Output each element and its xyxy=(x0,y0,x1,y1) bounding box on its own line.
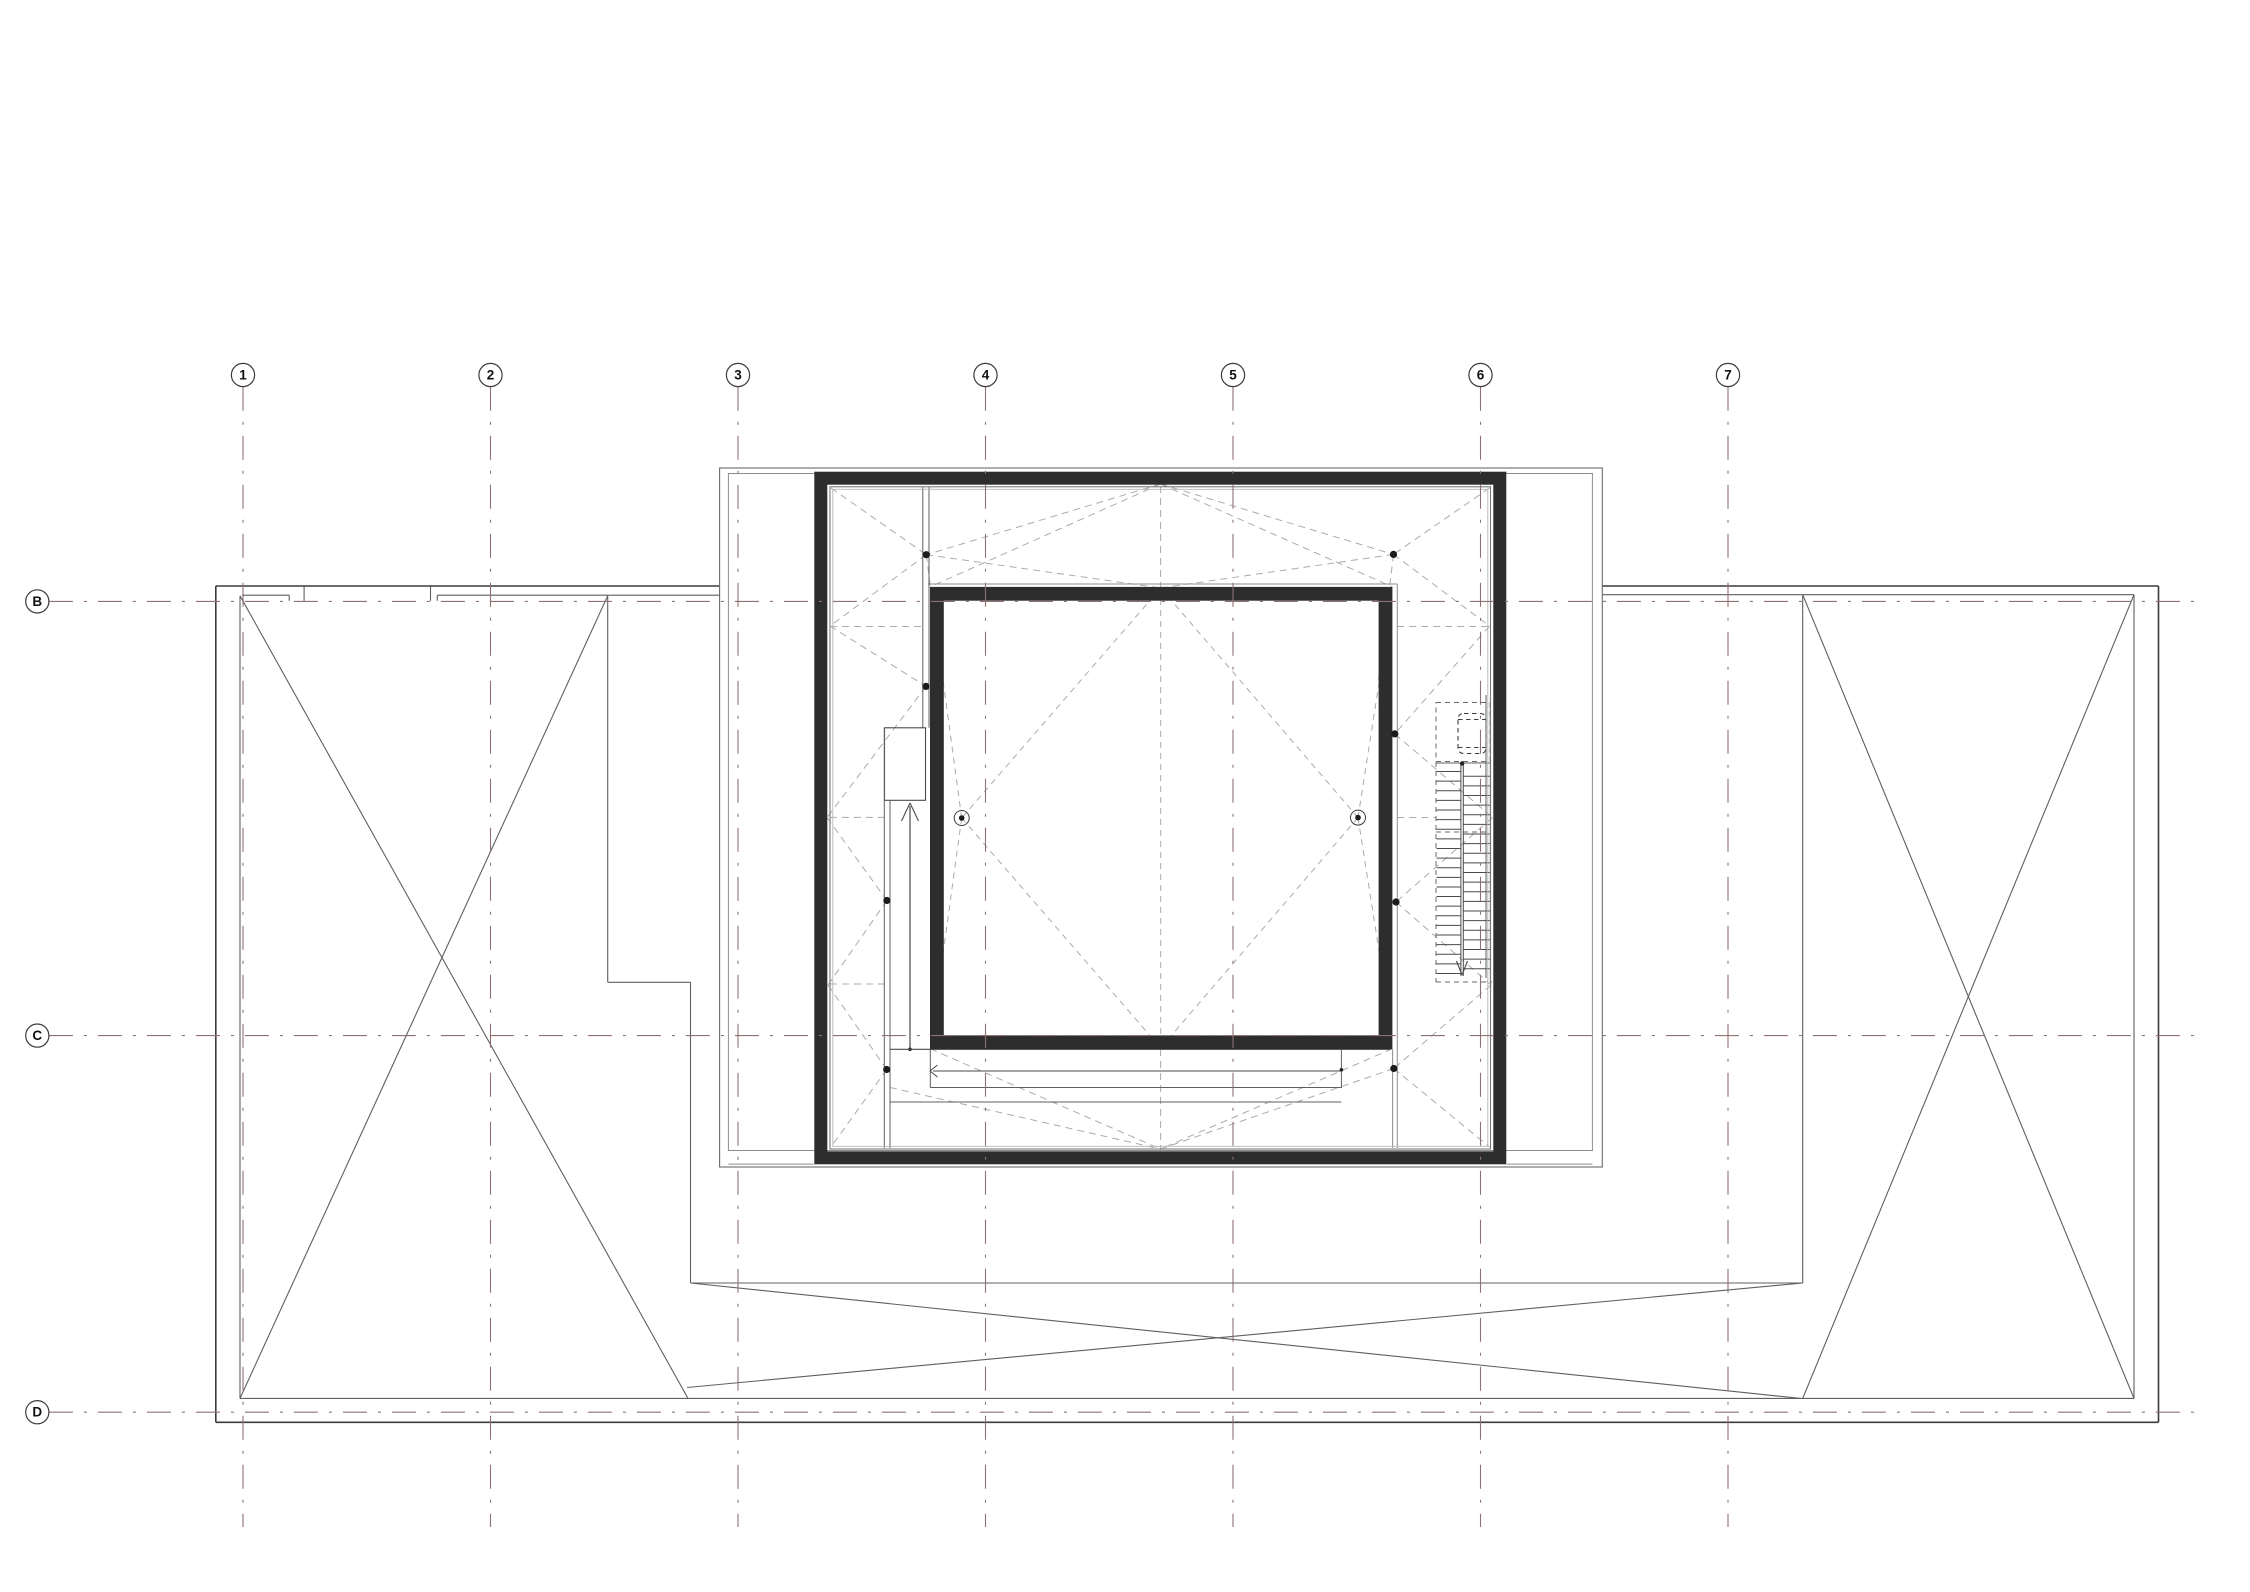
svg-text:6: 6 xyxy=(1477,368,1485,383)
svg-text:C: C xyxy=(32,1028,42,1043)
svg-text:D: D xyxy=(32,1405,42,1420)
svg-text:5: 5 xyxy=(1229,368,1237,383)
svg-text:7: 7 xyxy=(1724,368,1732,383)
svg-text:2: 2 xyxy=(487,368,495,383)
svg-text:3: 3 xyxy=(734,368,742,383)
svg-text:1: 1 xyxy=(239,368,247,383)
svg-text:4: 4 xyxy=(982,368,990,383)
svg-text:B: B xyxy=(32,594,42,609)
